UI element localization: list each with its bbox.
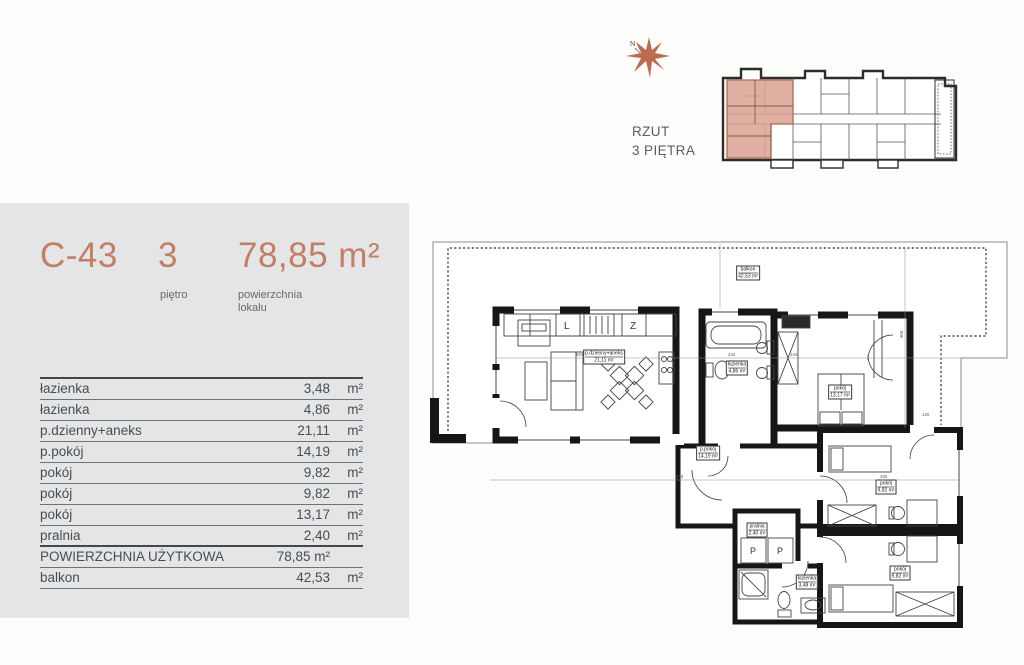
- svg-text:244: 244: [790, 352, 798, 357]
- room-name: pralnia: [40, 525, 258, 546]
- room-area: 9,82: [258, 483, 330, 504]
- room-label-balcony: balkon42,53 m²: [736, 266, 760, 281]
- room-label-laundry: pralnia2,40 m²: [747, 523, 768, 538]
- overview-title: RZUT 3 PIĘTRA: [632, 122, 695, 160]
- room-unit: m²: [330, 462, 363, 483]
- washer-label-1: P: [750, 546, 756, 556]
- table-row: łazienka 3,48 m²: [40, 378, 363, 399]
- washer-label-2: P: [777, 546, 783, 556]
- svg-text:222: 222: [728, 352, 736, 357]
- room-unit: m²: [330, 525, 363, 546]
- room-unit: m²: [330, 567, 363, 588]
- room-area: 3,48: [258, 378, 330, 399]
- table-row: p.dzienny+aneks 21,11 m²: [40, 420, 363, 441]
- table-row: pokój 9,82 m²: [40, 483, 363, 504]
- room-area: 2,40: [258, 525, 330, 546]
- area-label-line2: lokalu: [238, 302, 267, 314]
- room-area: 13,17: [258, 504, 330, 525]
- area-label-line1: powierzchnia: [238, 289, 302, 301]
- room-label-bedroom-3: pokój9,82 m²: [890, 566, 911, 581]
- dresser: [782, 316, 810, 328]
- room-name: łazienka: [40, 399, 258, 420]
- room-area: 9,82: [258, 462, 330, 483]
- room-unit: m²: [330, 504, 363, 525]
- room-name: balkon: [40, 567, 258, 588]
- room-name: pokój: [40, 483, 258, 504]
- room-label-hall: p.pokój14,19 m²: [696, 446, 720, 461]
- room-name: łazienka: [40, 378, 258, 399]
- compass-north-label: N: [630, 39, 635, 48]
- room-label-living: p.dzienny+aneks21,11 m²: [583, 350, 625, 365]
- room-area-table: łazienka 3,48 m² łazienka 4,86 m² p.dzie…: [40, 377, 363, 589]
- table-row: pokój 9,82 m²: [40, 462, 363, 483]
- floor-label: piętro: [160, 289, 188, 302]
- building-overview: [713, 64, 965, 182]
- compass-icon: N: [624, 34, 672, 80]
- room-unit: [330, 546, 363, 567]
- room-label-bathroom-1: łazienka4,86 m²: [726, 361, 748, 376]
- room-area: 4,86: [258, 399, 330, 420]
- room-unit: m²: [330, 420, 363, 441]
- room-area: 21,11: [258, 420, 330, 441]
- table-row-total: POWIERZCHNIA UŻYTKOWA 78,85 m²: [40, 546, 363, 567]
- table-row: p.pokój 14,19 m²: [40, 441, 363, 462]
- room-area: 78,85 m²: [258, 546, 330, 567]
- room-unit: m²: [330, 378, 363, 399]
- room-name: pokój: [40, 462, 258, 483]
- page: C-43 3 78,85 m² piętro powierzchnia loka…: [0, 0, 1024, 665]
- room-bathroom-1: [702, 312, 774, 454]
- room-name: pokój: [40, 504, 258, 525]
- dishwasher-label: Z: [630, 321, 636, 332]
- room-living: [496, 310, 676, 440]
- area-label: powierzchnia lokalu: [238, 289, 328, 315]
- room-label-bedroom-1: pokój13,17 m²: [828, 385, 852, 400]
- unit-area: 78,85 m²: [238, 236, 380, 276]
- overview-title-line2: 3 PIĘTRA: [632, 143, 695, 158]
- room-name: p.dzienny+aneks: [40, 420, 258, 441]
- svg-text:325: 325: [880, 474, 888, 479]
- table-row: pokój 13,17 m²: [40, 504, 363, 525]
- room-unit: m²: [330, 441, 363, 462]
- overview-title-line1: RZUT: [632, 124, 670, 139]
- floor-number: 3: [158, 236, 178, 276]
- svg-text:470: 470: [676, 474, 684, 479]
- room-label-bedroom-2: pokój9,82 m²: [876, 480, 897, 495]
- table-row: łazienka 4,86 m²: [40, 399, 363, 420]
- room-area: 42,53: [258, 567, 330, 588]
- fridge-label: L: [564, 321, 570, 332]
- room-unit: m²: [330, 399, 363, 420]
- room-name: p.pokój: [40, 441, 258, 462]
- table-row: balkon 42,53 m²: [40, 567, 363, 588]
- svg-text:905: 905: [899, 330, 904, 338]
- room-label-bathroom-2: łazienka3,48 m²: [796, 575, 818, 590]
- room-unit: m²: [330, 483, 363, 504]
- room-name: POWIERZCHNIA UŻYTKOWA: [40, 546, 258, 567]
- room-laundry: [735, 511, 798, 566]
- unit-id: C-43: [40, 236, 118, 276]
- table-row: pralnia 2,40 m²: [40, 525, 363, 546]
- room-area: 14,19: [258, 441, 330, 462]
- floor-plan: L Z P P 604 222 244 905 470 325 120: [430, 228, 1012, 664]
- unit-info-panel: C-43 3 78,85 m² piętro powierzchnia loka…: [0, 203, 409, 618]
- svg-text:120: 120: [922, 412, 930, 417]
- room-bedroom-2: [820, 430, 960, 527]
